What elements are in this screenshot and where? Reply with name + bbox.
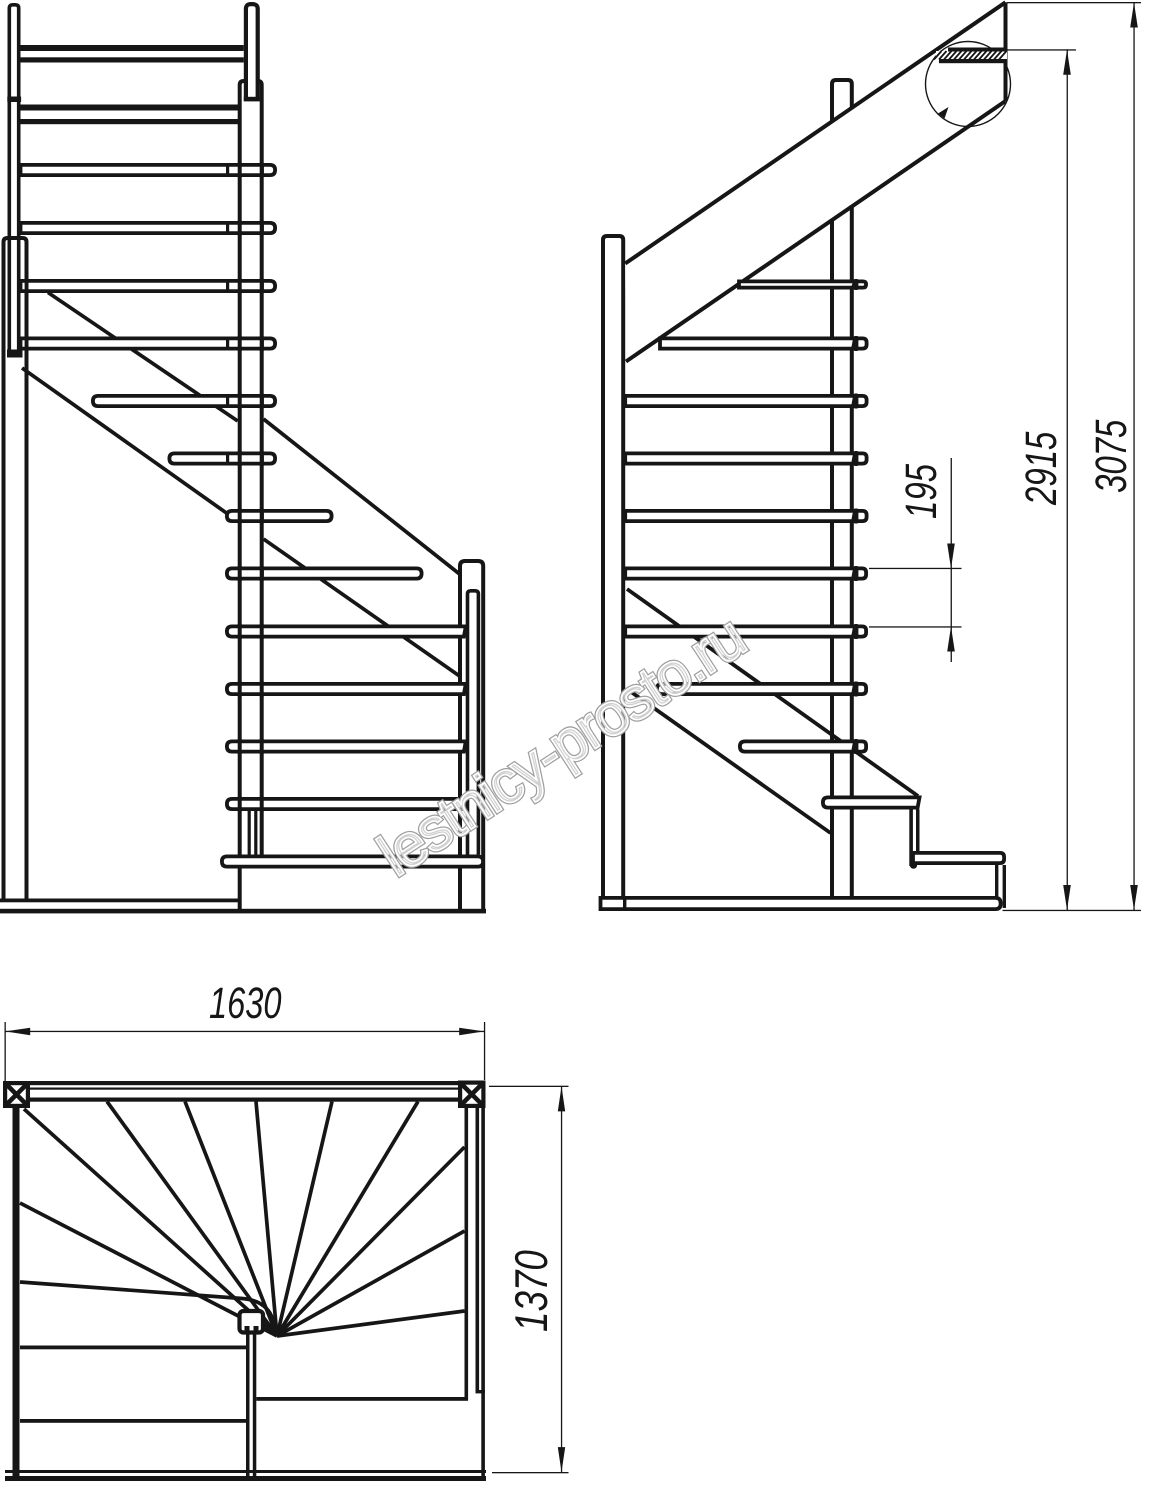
svg-text:3075: 3075 [1087, 419, 1136, 493]
svg-text:2915: 2915 [1017, 431, 1066, 506]
svg-text:1370: 1370 [505, 1250, 557, 1332]
svg-text:195: 195 [897, 464, 946, 519]
svg-text:1630: 1630 [209, 979, 282, 1028]
